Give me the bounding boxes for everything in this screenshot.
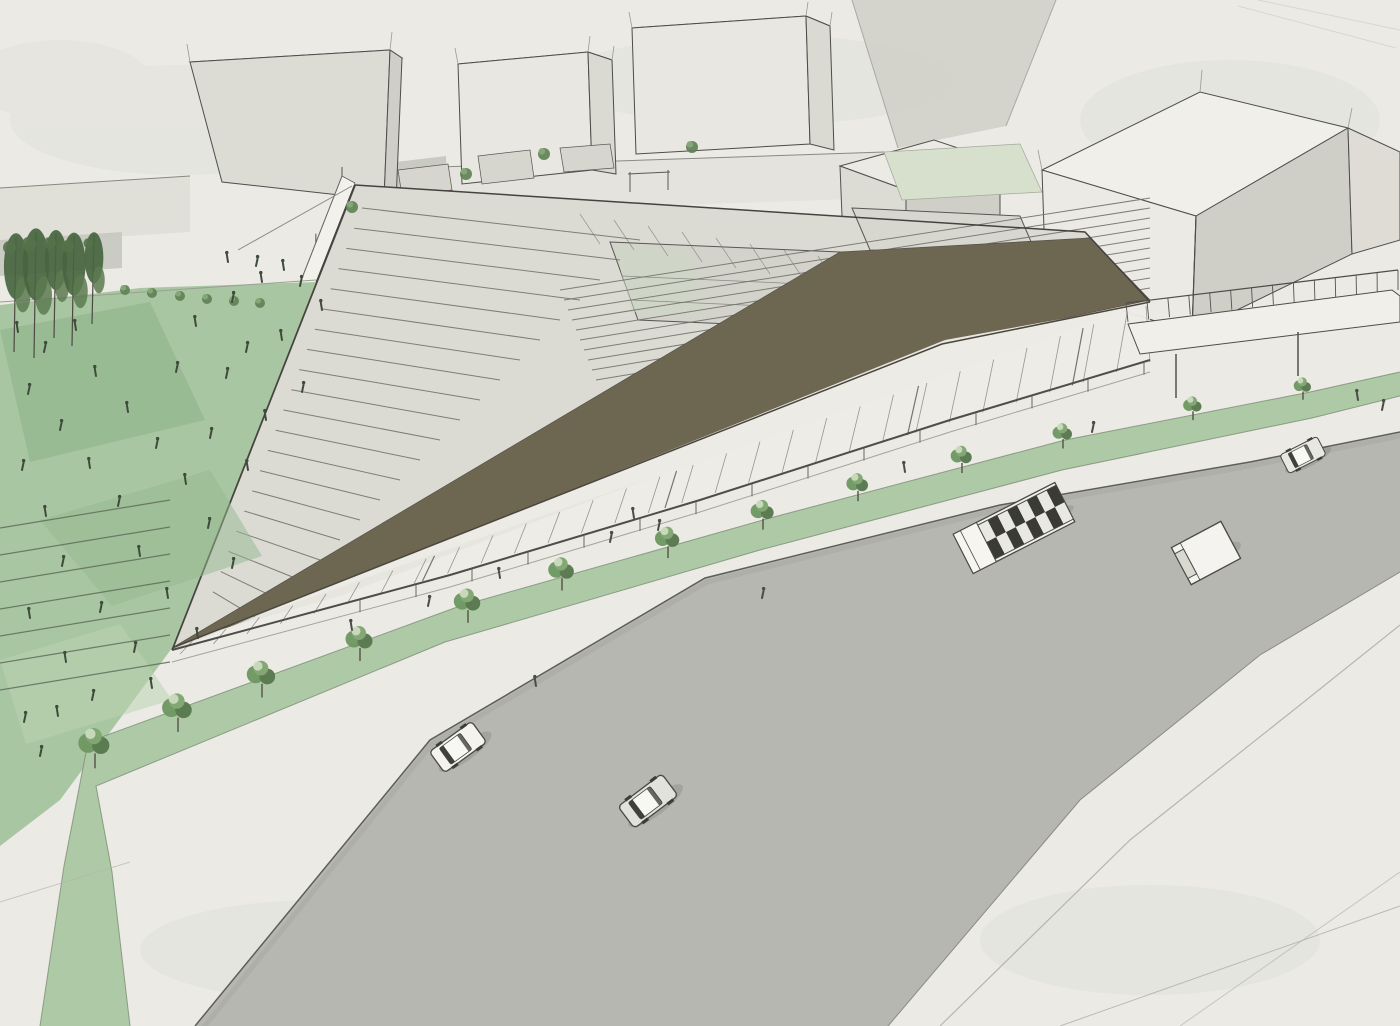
tree-canopy <box>22 237 36 251</box>
shed <box>478 150 534 184</box>
person-body <box>29 611 30 619</box>
person-head <box>15 321 18 324</box>
person-head <box>134 641 137 644</box>
tree-canopy <box>3 241 16 254</box>
shrub-highlight <box>347 201 354 208</box>
person-head <box>43 505 46 508</box>
person-head <box>1355 389 1358 392</box>
tree-canopy-highlight <box>460 589 469 598</box>
person-head <box>902 461 905 464</box>
person-head <box>208 517 211 520</box>
person-body <box>535 679 536 687</box>
person-body <box>75 323 76 331</box>
person-head <box>279 329 282 332</box>
person-body <box>261 275 262 283</box>
person-head <box>1382 399 1385 402</box>
person-body <box>195 319 196 327</box>
shrub-highlight <box>121 285 127 291</box>
person-body <box>167 591 168 599</box>
tree-canopy-highlight <box>1057 424 1063 430</box>
person-body <box>89 461 90 469</box>
shrub-highlight <box>461 168 468 175</box>
person-head <box>762 587 765 590</box>
person-body <box>351 623 352 631</box>
shrub-highlight <box>256 298 262 304</box>
tree-canopy-highlight <box>169 694 179 704</box>
architectural-rendering-canvas <box>0 0 1400 1026</box>
person-head <box>245 459 248 462</box>
person-head <box>259 271 262 274</box>
person-head <box>195 627 198 630</box>
person-body <box>227 255 228 263</box>
person-head <box>176 361 179 364</box>
person-head <box>497 567 500 570</box>
tree-canopy-highlight <box>352 627 361 636</box>
person-head <box>319 299 322 302</box>
person-body <box>17 325 18 333</box>
shrub-highlight <box>176 291 182 297</box>
tree-canopy-highlight <box>851 474 858 481</box>
person-head <box>92 689 95 692</box>
person-head <box>256 255 259 258</box>
person-head <box>631 507 634 510</box>
shrub-highlight <box>203 294 209 300</box>
person-body <box>499 571 500 579</box>
tree-canopy-highlight <box>253 661 262 670</box>
tree-canopy-highlight <box>756 500 764 508</box>
person-body <box>95 369 96 377</box>
person-head <box>24 711 27 714</box>
person-body <box>57 709 58 717</box>
person-head <box>610 531 613 534</box>
tree-canopy-highlight <box>955 446 962 453</box>
person-head <box>658 519 661 522</box>
person-body <box>197 631 198 639</box>
person-body <box>65 655 66 663</box>
paper-blotch <box>980 885 1320 995</box>
person-head <box>100 601 103 604</box>
person-body <box>139 549 140 557</box>
tree-canopy <box>93 266 105 293</box>
person-head <box>302 381 305 384</box>
page <box>0 0 1400 1026</box>
person-head <box>193 315 196 318</box>
person-head <box>60 419 63 422</box>
person-head <box>149 677 152 680</box>
person-head <box>40 745 43 748</box>
person-head <box>87 457 90 460</box>
person-head <box>226 367 229 370</box>
person-head <box>28 383 31 386</box>
railing-post <box>1314 280 1315 300</box>
tree-canopy-highlight <box>554 558 563 567</box>
person-body <box>283 263 284 271</box>
tree-canopy-highlight <box>1298 378 1304 384</box>
tree-canopy <box>73 275 88 309</box>
person-head <box>137 545 140 548</box>
person-head <box>263 409 266 412</box>
person-head <box>125 401 128 404</box>
tree-canopy <box>62 240 75 253</box>
person-body <box>247 463 248 471</box>
shrub-highlight <box>687 141 694 148</box>
pale-green-roof <box>884 144 1042 200</box>
person-body <box>1357 393 1358 401</box>
tree-canopy-highlight <box>85 729 95 739</box>
person-head <box>27 607 30 610</box>
person-head <box>165 587 168 590</box>
person-head <box>183 473 186 476</box>
person-head <box>246 341 249 344</box>
person-head <box>22 459 25 462</box>
person-head <box>44 341 47 344</box>
person-body <box>633 511 634 519</box>
tree-canopy-highlight <box>1187 397 1193 403</box>
shrub-highlight <box>539 148 546 155</box>
person-head <box>118 495 121 498</box>
tree-canopy <box>84 238 94 248</box>
person-head <box>281 259 284 262</box>
building-front-face <box>632 16 810 154</box>
person-head <box>225 251 228 254</box>
person-head <box>210 427 213 430</box>
person-head <box>73 319 76 322</box>
person-body <box>45 509 46 517</box>
person-body <box>127 405 128 413</box>
tree-canopy-highlight <box>660 527 668 535</box>
person-body <box>904 465 905 473</box>
person-head <box>232 291 235 294</box>
person-head <box>93 365 96 368</box>
building-side-face <box>806 16 834 150</box>
person-head <box>1092 421 1095 424</box>
person-head <box>232 557 235 560</box>
tree-canopy <box>44 237 56 249</box>
person-head <box>428 595 431 598</box>
person-head <box>533 675 536 678</box>
person-head <box>156 437 159 440</box>
person-body <box>321 303 322 311</box>
person-head <box>62 555 65 558</box>
shed <box>560 144 614 172</box>
shrub-highlight <box>148 288 154 294</box>
person-body <box>281 333 282 341</box>
person-body <box>185 477 186 485</box>
person-body <box>151 681 152 689</box>
person-body <box>265 413 266 421</box>
person-head <box>349 619 352 622</box>
person-head <box>63 651 66 654</box>
person-head <box>300 275 303 278</box>
person-head <box>55 705 58 708</box>
